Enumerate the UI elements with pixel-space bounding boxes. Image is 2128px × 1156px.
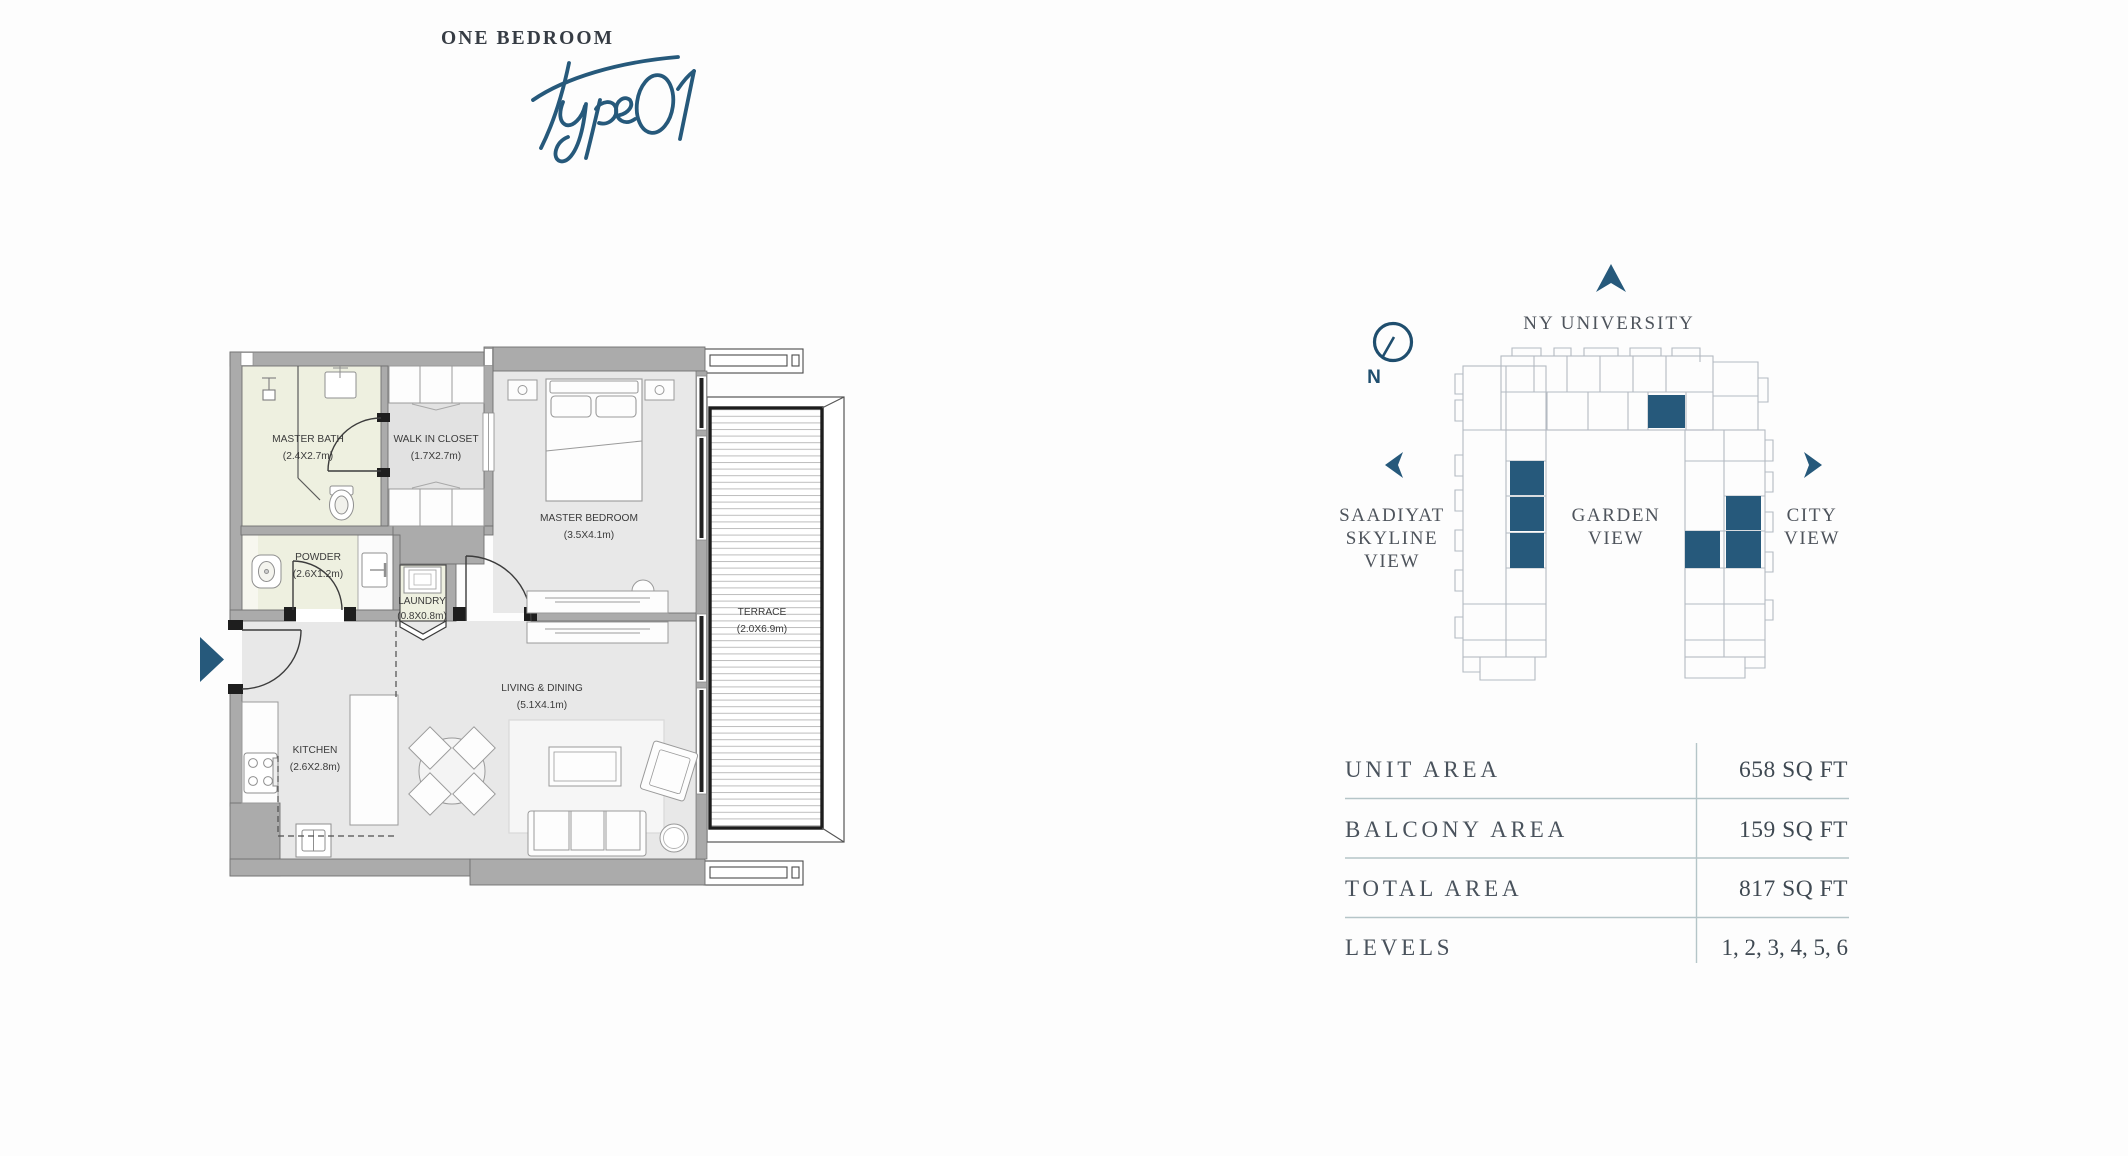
svg-text:VIEW: VIEW [1364, 551, 1420, 572]
svg-text:CITY: CITY [1787, 505, 1838, 526]
svg-text:NY UNIVERSITY: NY UNIVERSITY [1523, 313, 1694, 334]
svg-text:MASTER BATH: MASTER BATH [272, 434, 344, 445]
svg-text:LAUNDRY: LAUNDRY [398, 596, 446, 607]
svg-text:(3.5X4.1m): (3.5X4.1m) [564, 530, 614, 541]
svg-text:SKYLINE: SKYLINE [1346, 528, 1438, 549]
svg-text:LIVING & DINING: LIVING & DINING [501, 683, 583, 694]
svg-text:ONE BEDROOM: ONE BEDROOM [441, 28, 614, 49]
svg-text:(2.4X2.7m): (2.4X2.7m) [283, 451, 333, 462]
svg-text:(0.8X0.8m): (0.8X0.8m) [397, 611, 446, 622]
svg-text:VIEW: VIEW [1588, 528, 1644, 549]
svg-text:VIEW: VIEW [1784, 528, 1840, 549]
svg-text:LEVELS: LEVELS [1345, 935, 1453, 960]
svg-text:(2.6X1.2m): (2.6X1.2m) [293, 569, 343, 580]
svg-text:MASTER BEDROOM: MASTER BEDROOM [540, 513, 638, 524]
svg-text:KITCHEN: KITCHEN [293, 745, 338, 756]
svg-text:TOTAL AREA: TOTAL AREA [1345, 876, 1522, 901]
svg-text:TERRACE: TERRACE [738, 607, 787, 618]
svg-text:817 SQ FT: 817 SQ FT [1739, 876, 1848, 902]
svg-text:(5.1X4.1m): (5.1X4.1m) [517, 700, 567, 711]
svg-text:(1.7X2.7m): (1.7X2.7m) [411, 451, 461, 462]
svg-text:658 SQ FT: 658 SQ FT [1739, 757, 1848, 783]
svg-text:WALK IN CLOSET: WALK IN CLOSET [393, 434, 478, 445]
svg-text:BALCONY AREA: BALCONY AREA [1345, 817, 1568, 842]
svg-text:POWDER: POWDER [295, 552, 341, 563]
svg-text:1, 2, 3, 4, 5, 6: 1, 2, 3, 4, 5, 6 [1722, 935, 1849, 960]
svg-text:SAADIYAT: SAADIYAT [1339, 505, 1445, 526]
svg-text:N: N [1367, 367, 1381, 388]
svg-text:(2.6X2.8m): (2.6X2.8m) [290, 762, 340, 773]
svg-text:GARDEN: GARDEN [1572, 505, 1661, 526]
svg-text:UNIT AREA: UNIT AREA [1345, 757, 1501, 782]
svg-text:159 SQ FT: 159 SQ FT [1739, 817, 1848, 843]
svg-text:(2.0X6.9m): (2.0X6.9m) [737, 624, 787, 635]
